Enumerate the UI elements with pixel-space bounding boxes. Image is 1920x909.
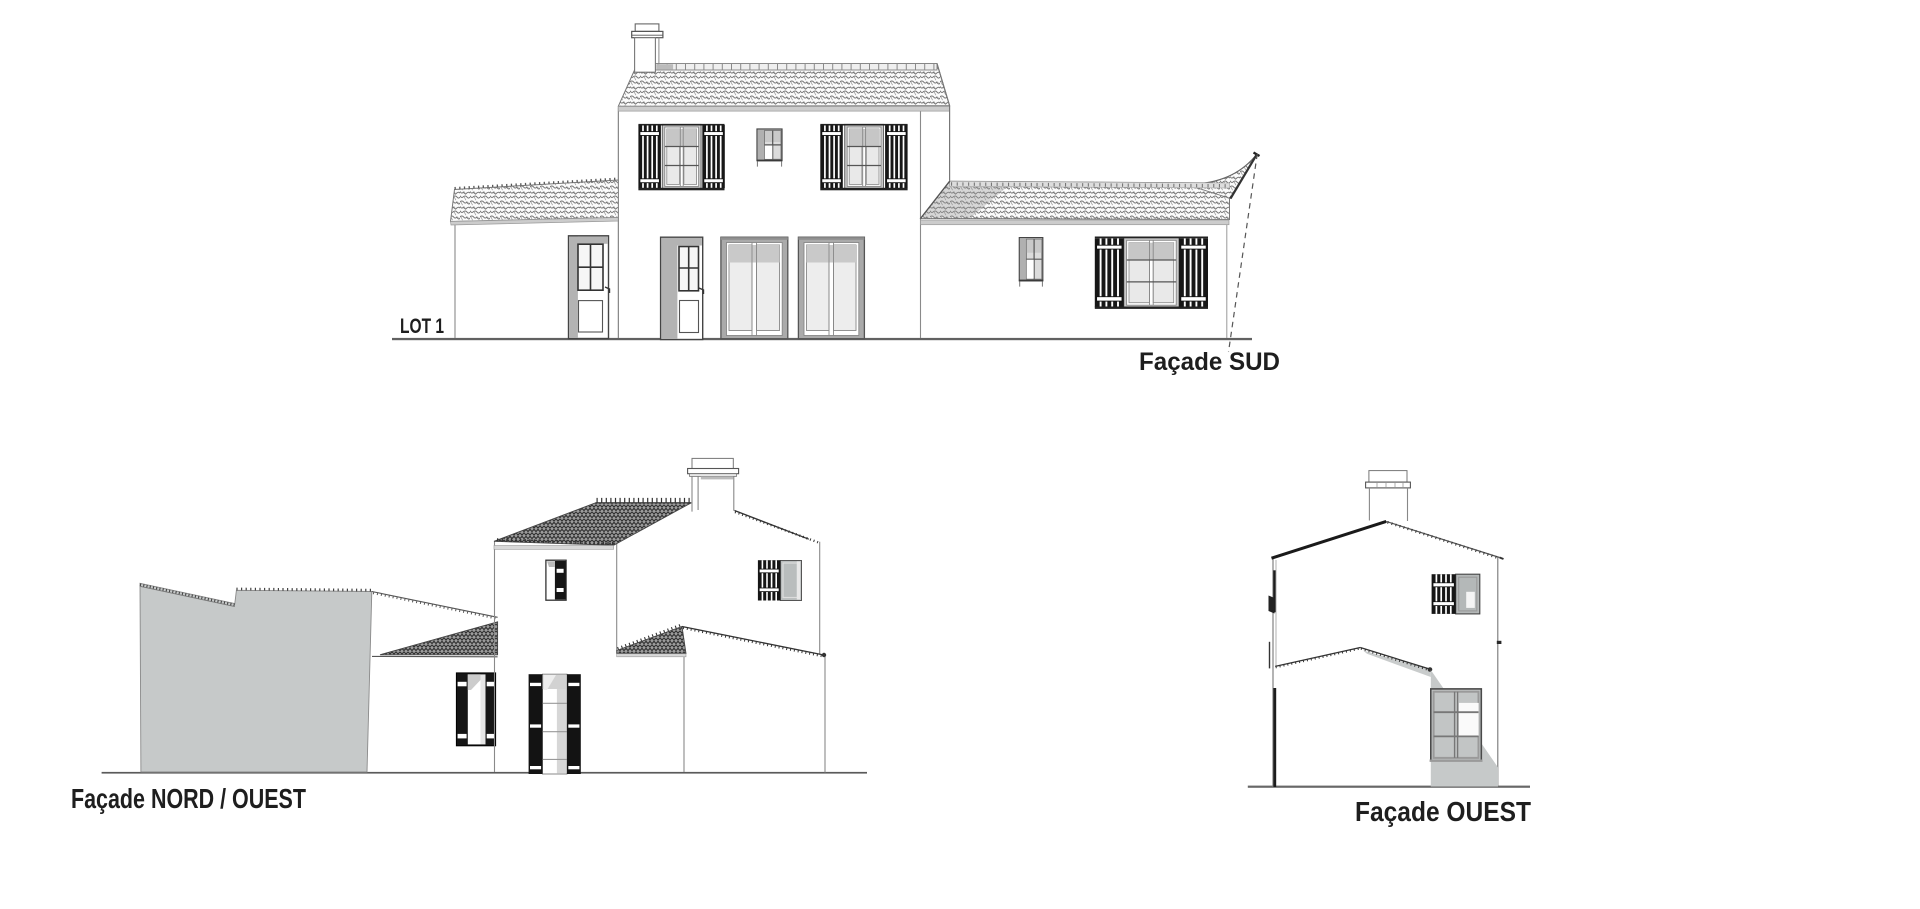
svg-text:Façade NORD / OUEST: Façade NORD / OUEST <box>71 783 306 814</box>
svg-text:Façade SUD: Façade SUD <box>1139 348 1280 376</box>
svg-text:Façade OUEST: Façade OUEST <box>1355 796 1531 827</box>
svg-text:LOT 1: LOT 1 <box>400 314 444 338</box>
